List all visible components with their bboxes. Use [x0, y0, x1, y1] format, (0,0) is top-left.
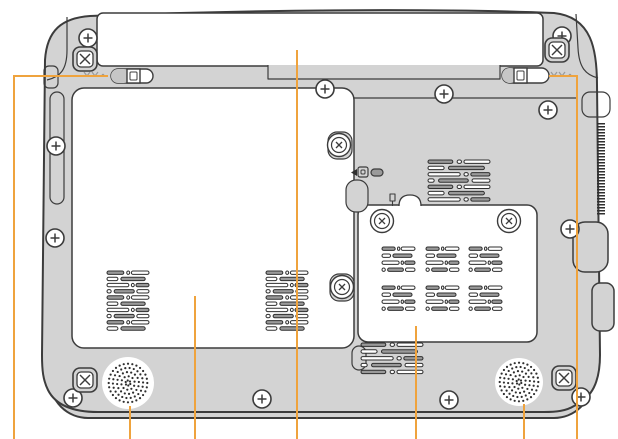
lock-screw-icon — [498, 210, 521, 233]
phillips-screw-icon — [539, 101, 557, 119]
laptop-bottom-view-figure — [0, 0, 618, 439]
bumper-screw-icon — [552, 366, 576, 390]
lock-screw-icon — [331, 276, 354, 299]
lock-screw-icon — [328, 134, 351, 157]
lock-screw-icon — [371, 210, 394, 233]
right-lower-bulge — [592, 283, 614, 331]
bumper-screw-icon — [545, 38, 569, 62]
battery-latch-manual — [502, 68, 549, 83]
memory-cover-notch — [399, 195, 421, 206]
speaker-left — [102, 357, 154, 409]
phillips-screw-icon — [79, 29, 97, 47]
bumper-screw-icon — [73, 47, 97, 71]
thumb-recess — [346, 180, 368, 212]
phillips-screw-icon — [253, 390, 271, 408]
phillips-screw-icon — [435, 85, 453, 103]
battery-step-fill — [268, 65, 500, 79]
phillips-screw-icon — [440, 391, 458, 409]
figure-canvas — [0, 0, 618, 439]
bumper-screw-icon — [73, 368, 97, 392]
battery-latch-spring — [111, 69, 153, 83]
battery-pack — [97, 13, 543, 66]
speaker-right — [495, 358, 543, 406]
phillips-screw-icon — [47, 137, 65, 155]
phillips-screw-icon — [316, 80, 334, 98]
battery-lock-pill-icon — [371, 169, 383, 176]
phillips-screw-icon — [46, 229, 64, 247]
phillips-screw-icon — [572, 388, 590, 406]
